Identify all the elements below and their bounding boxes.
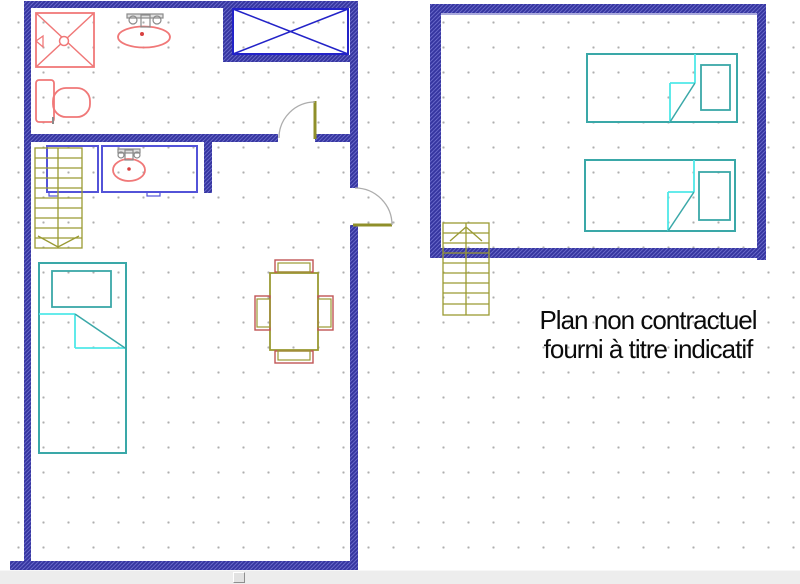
unitB-left-wall <box>430 4 441 258</box>
chair-east-inner <box>318 299 331 327</box>
cabinet-box <box>47 146 98 192</box>
chair-south-outer <box>275 351 313 363</box>
plan-disclaimer: Plan non contractuel fourni à titre indi… <box>514 306 782 364</box>
vanity-counter <box>102 146 197 192</box>
unitA-interior-wall-east <box>315 134 350 142</box>
dining-table <box>270 273 318 350</box>
plan-disclaimer-line2: fourni à titre indicatif <box>514 335 782 364</box>
app-window: Plan non contractuel fourni à titre indi… <box>0 0 800 584</box>
bed-bottom-pillow <box>699 172 730 220</box>
floor-plan-svg <box>0 0 800 570</box>
bath2-stub-wall <box>204 142 212 193</box>
walls-layer <box>10 1 766 570</box>
unitA-top-wall <box>24 1 358 8</box>
chair-west-inner <box>257 299 270 327</box>
bed-left-pillow <box>52 271 111 307</box>
closet-south-wall <box>223 55 350 62</box>
unitB-top-wall <box>430 4 766 13</box>
bed-bottom-blanket <box>668 160 694 231</box>
bath-sink-basin <box>118 27 170 48</box>
bed-top-pillow <box>701 65 730 110</box>
unitA-right-wall-upper <box>350 1 358 188</box>
chair-north-outer <box>275 260 313 272</box>
chair-north-inner <box>278 263 310 272</box>
unitA-right-wall-lower <box>350 225 358 570</box>
window-cross-lines <box>233 9 348 54</box>
plan-canvas[interactable]: Plan non contractuel fourni à titre indi… <box>0 0 800 570</box>
chair-south-inner <box>278 351 310 360</box>
unitB-right-wall <box>757 4 766 260</box>
shower-head <box>36 36 43 47</box>
bed-bottom-blanket-fold <box>668 192 694 231</box>
vanity-sink-drain <box>127 167 131 171</box>
plan-disclaimer-line1: Plan non contractuel <box>514 306 782 335</box>
bed-top-blanket-fold <box>670 83 695 122</box>
closet-west-wall <box>223 8 233 55</box>
bed-left-blanket-fold <box>75 314 125 348</box>
unitA-interior-wall-west <box>31 134 278 142</box>
bath-sink-drain <box>140 32 144 36</box>
shower-drain <box>60 37 69 46</box>
horizontal-scrollbar[interactable] <box>0 570 800 584</box>
toilet-tank <box>36 80 54 122</box>
unitA-left-wall <box>24 1 31 570</box>
shapes-layer <box>35 9 757 453</box>
bathroom-door-swing <box>279 102 315 138</box>
toilet-bowl <box>53 88 90 117</box>
scrollbar-handle[interactable] <box>233 572 245 583</box>
entry-door-swing <box>355 188 392 225</box>
unitA-bottom-wall <box>10 561 358 570</box>
